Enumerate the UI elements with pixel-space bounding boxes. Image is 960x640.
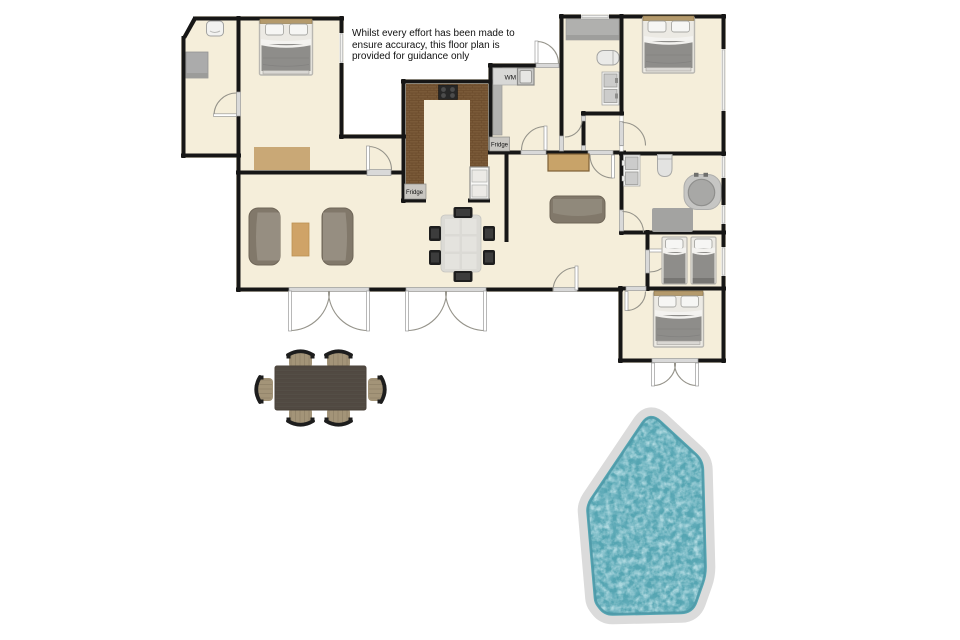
svg-text:Fridge: Fridge — [406, 190, 424, 196]
svg-text:Fridge: Fridge — [491, 143, 509, 149]
svg-text:WM: WM — [505, 75, 517, 82]
